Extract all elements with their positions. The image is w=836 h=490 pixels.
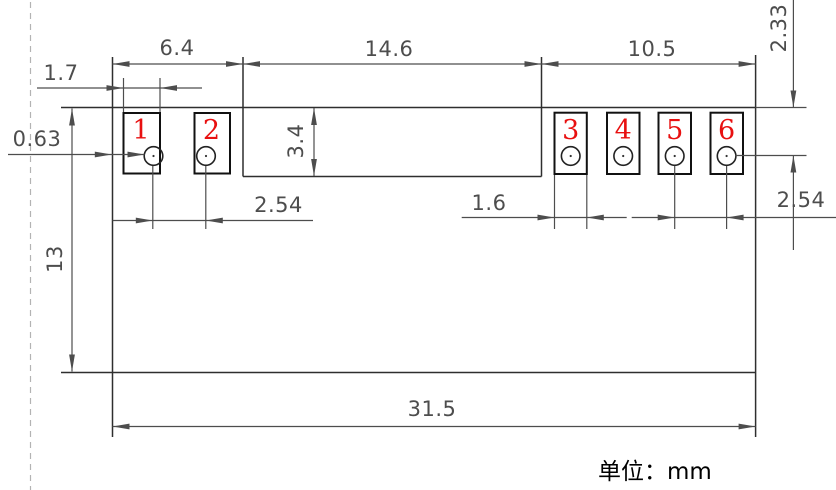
dim-top-to-hole: 2.33 [767,4,791,53]
dim-left-section: 6.4 [160,36,195,60]
pad-1-label: 1 [132,115,149,146]
dim-slot-height: 3.4 [284,124,308,159]
pad-4-label: 4 [615,115,632,146]
pad-1-center-mark [152,155,154,157]
pad-2: 2 [195,113,231,174]
drawing-canvas: 1 2 3 4 5 6 [0,0,836,490]
pad-5-label: 5 [666,115,683,146]
pad-4-center-mark [622,155,624,157]
arrowhead [542,61,559,67]
pad-3-label: 3 [562,115,579,146]
dimension-slot-height: 3.4 [284,108,317,176]
dim-body-width: 31.5 [408,397,457,421]
footprint-drawing: 1 2 3 4 5 6 [0,0,836,490]
dim-right-section: 10.5 [628,37,677,61]
dim-pitch-right: 2.54 [777,188,826,212]
component-outline [61,55,756,437]
arrowhead [160,85,177,91]
dimension-top-row: 6.4 14.6 10.5 [113,36,756,67]
arrowhead [658,215,675,221]
dimension-top-to-hole: 2.33 [736,0,807,250]
arrowhead [95,152,112,158]
pad-2-label: 2 [203,115,220,146]
pad-6: 6 [711,113,744,174]
arrowhead [727,215,744,221]
arrowhead [739,424,756,430]
arrowhead [69,109,75,126]
arrowhead [206,218,223,224]
dim-pitch-left: 2.54 [254,193,303,217]
dim-pad3-width: 1.6 [472,191,507,215]
arrowhead [538,215,555,221]
arrowhead [113,424,130,430]
arrowhead [136,218,153,224]
arrowhead [311,159,317,176]
dim-edge-gap: 0.63 [13,127,62,151]
arrowhead [113,61,130,67]
dimension-pitch-left: 2.54 [113,166,313,229]
arrowhead [791,156,797,173]
arrowhead [243,61,260,67]
dim-slot-width: 14.6 [365,37,414,61]
pad-5: 5 [659,113,692,174]
arrowhead [587,215,604,221]
dimension-pad1-width: 1.7 [37,61,202,112]
arrowhead [107,85,124,91]
dim-pad1-width: 1.7 [44,61,79,85]
dimension-bottom-right-row: 1.6 2.54 [462,166,836,229]
pad-3: 3 [555,113,587,174]
pad-6-label: 6 [718,115,735,146]
dimension-body-width: 31.5 [113,397,756,429]
pads: 1 2 3 4 5 6 [124,113,744,174]
arrowhead [525,61,542,67]
arrowhead [791,91,797,108]
pad-2-center-mark [205,155,207,157]
arrowhead [311,108,317,125]
pad-6-center-mark [726,155,728,157]
pad-1: 1 [124,113,163,174]
arrowhead [226,61,243,67]
pad-5-center-mark [674,155,676,157]
dim-body-height: 13 [43,245,67,273]
pad-3-center-mark [570,155,572,157]
arrowhead [739,61,756,67]
pad-4: 4 [607,113,640,174]
unit-label: 单位：mm [598,459,712,485]
arrowhead [69,355,75,372]
